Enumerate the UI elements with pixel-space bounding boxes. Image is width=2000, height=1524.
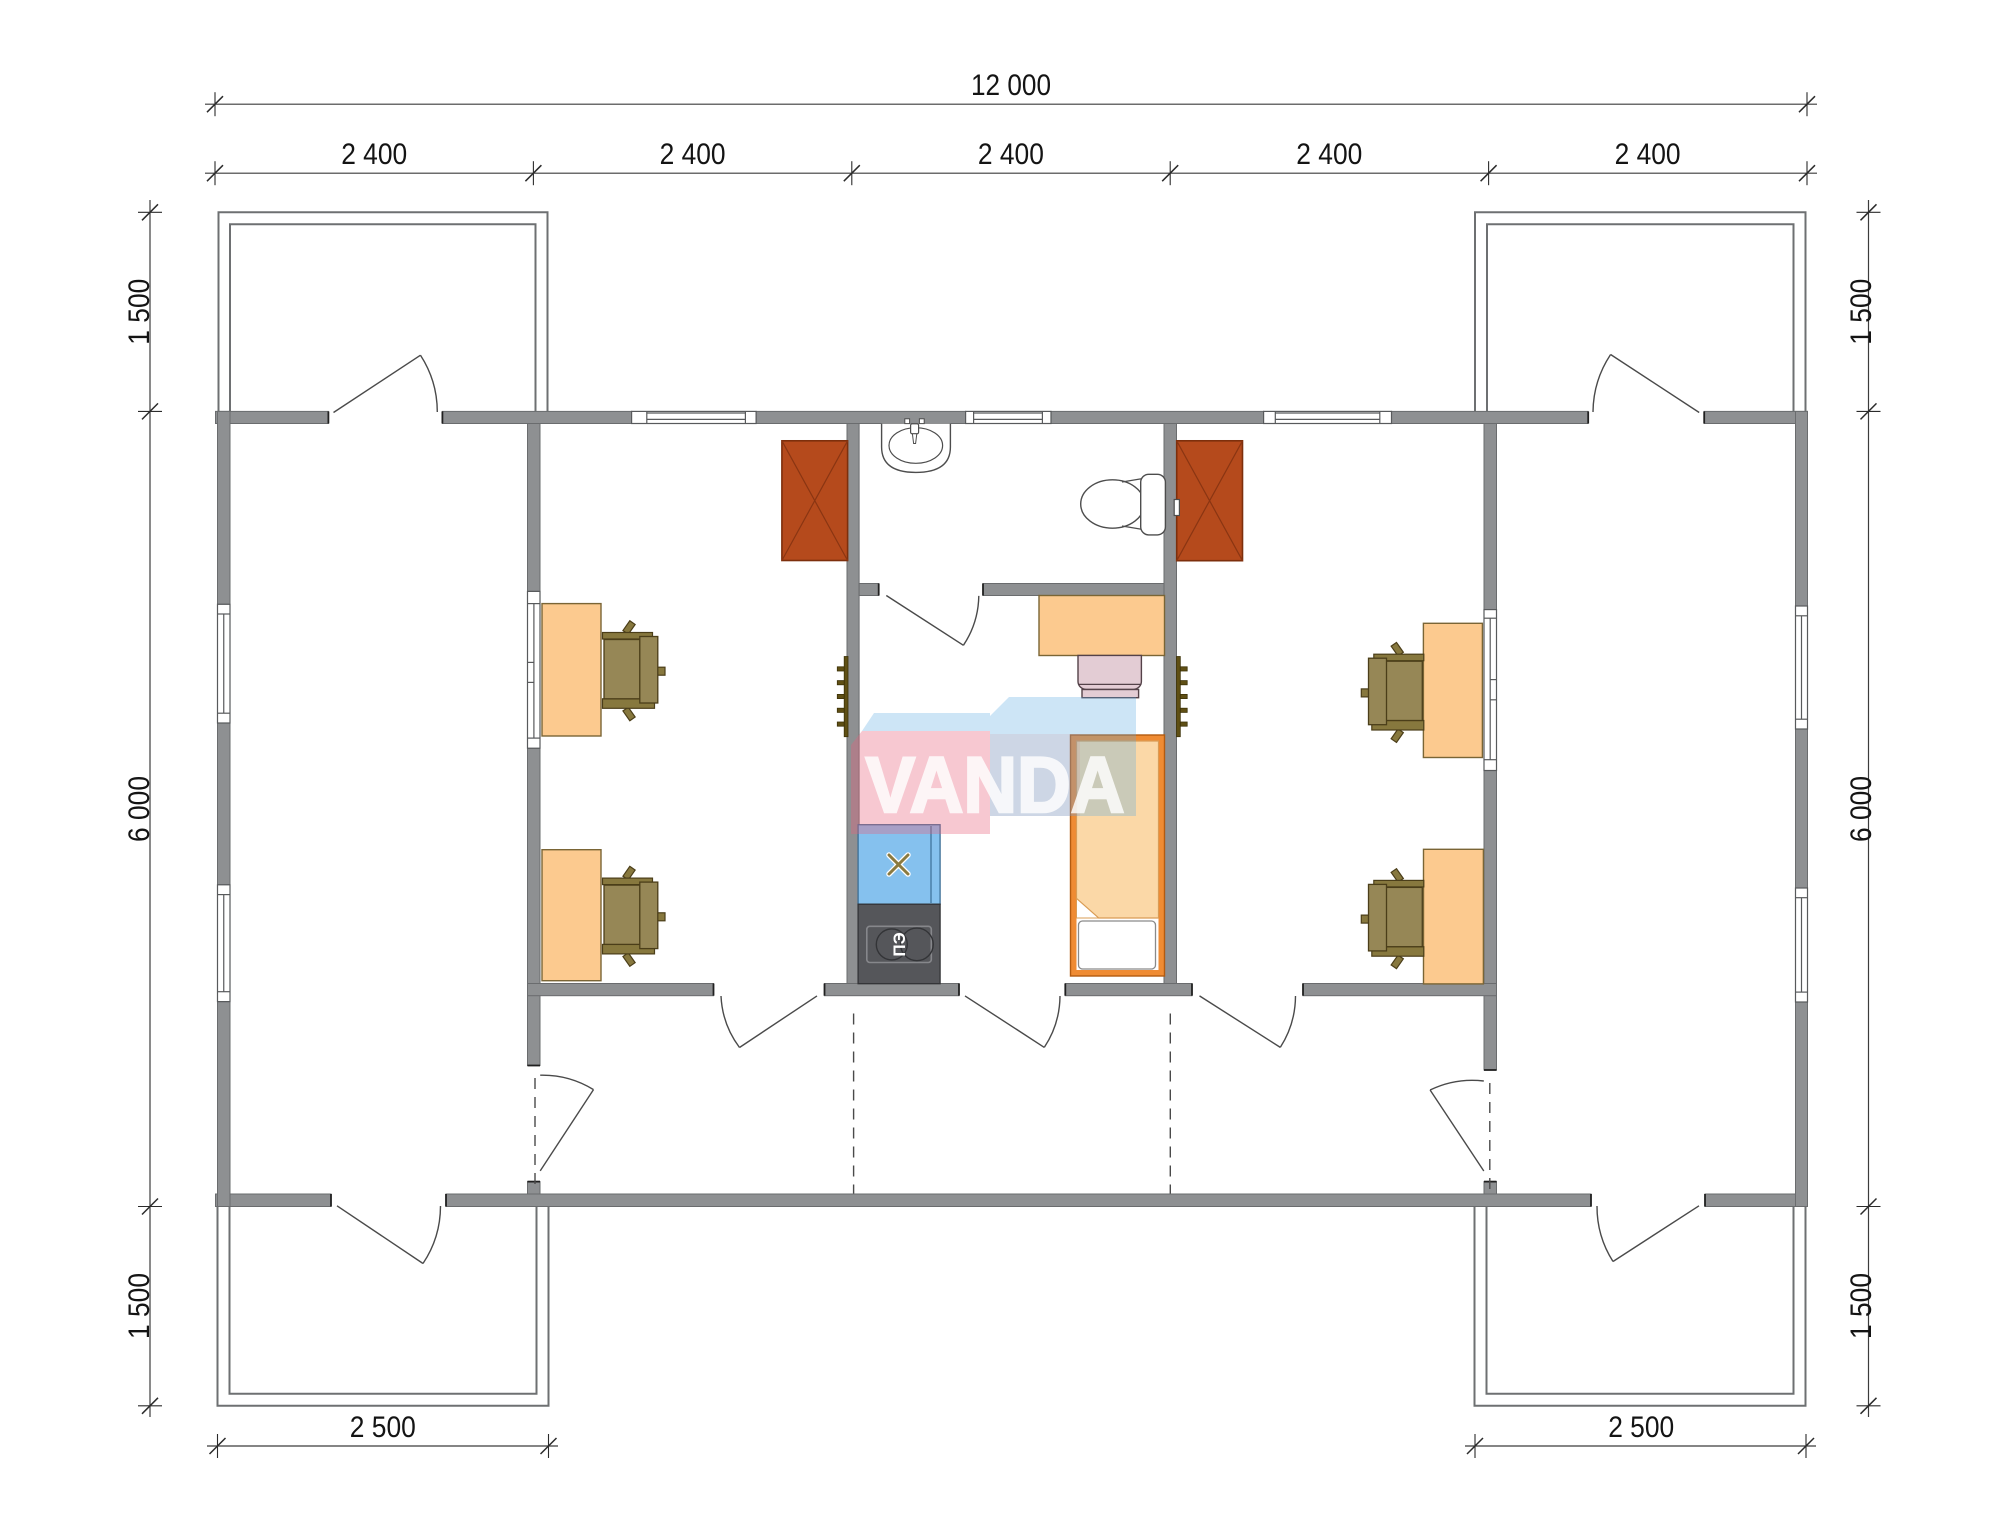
svg-text:2 400: 2 400 bbox=[341, 138, 407, 171]
svg-text:2 500: 2 500 bbox=[1608, 1411, 1674, 1444]
svg-text:1 500: 1 500 bbox=[123, 1273, 156, 1339]
svg-text:2 400: 2 400 bbox=[1296, 138, 1362, 171]
svg-text:2 400: 2 400 bbox=[1615, 138, 1681, 171]
svg-text:1 500: 1 500 bbox=[1845, 1273, 1878, 1339]
svg-text:2 400: 2 400 bbox=[978, 138, 1044, 171]
svg-text:1 500: 1 500 bbox=[1845, 279, 1878, 345]
svg-text:6 000: 6 000 bbox=[1845, 776, 1878, 842]
svg-text:6 000: 6 000 bbox=[123, 776, 156, 842]
svg-text:VANDA: VANDA bbox=[866, 740, 1125, 829]
svg-text:2 500: 2 500 bbox=[350, 1411, 416, 1444]
svg-text:ПЭ: ПЭ bbox=[890, 932, 909, 956]
svg-text:12 000: 12 000 bbox=[971, 69, 1051, 102]
svg-text:1 500: 1 500 bbox=[123, 279, 156, 345]
svg-text:2 400: 2 400 bbox=[660, 138, 726, 171]
